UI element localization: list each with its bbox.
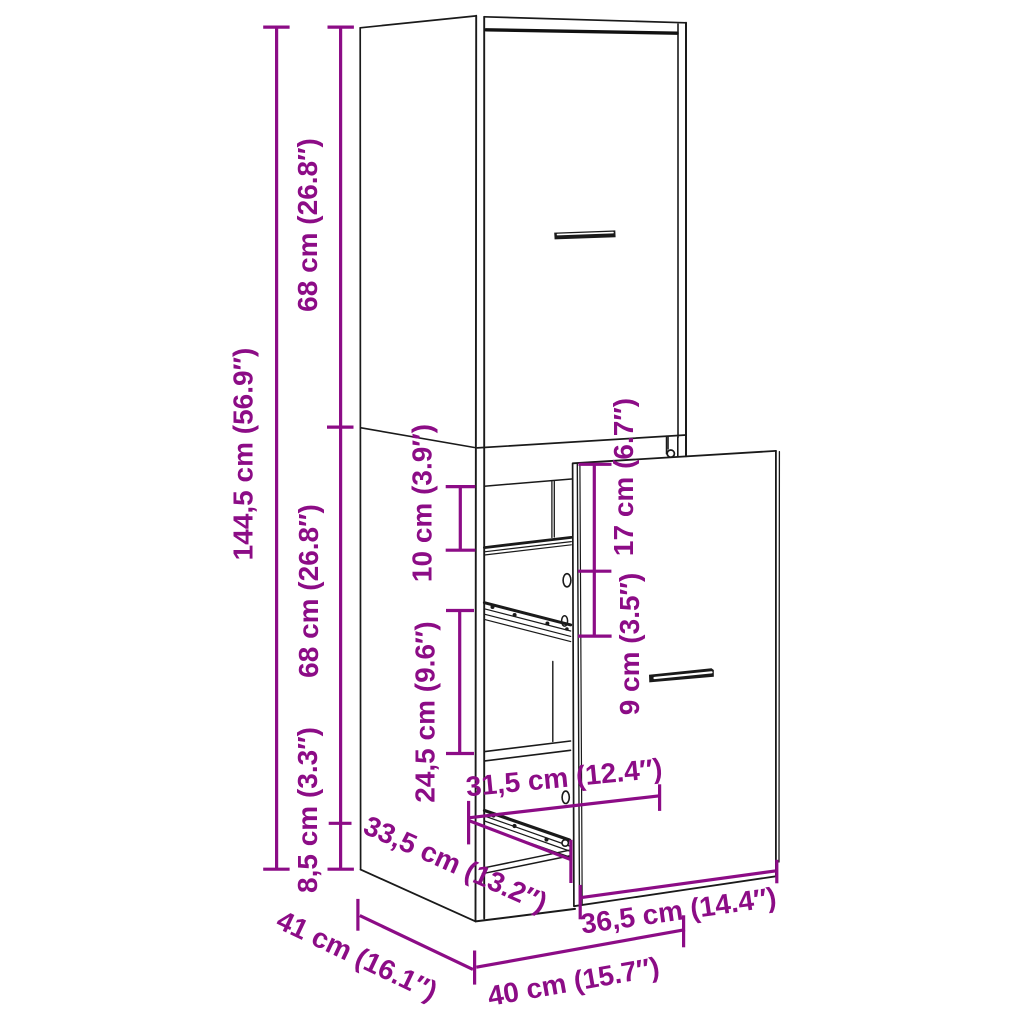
svg-text:9 cm (3.5″): 9 cm (3.5″) [614, 573, 645, 716]
svg-text:68 cm (26.8″): 68 cm (26.8″) [292, 138, 323, 312]
svg-text:68 cm (26.8″): 68 cm (26.8″) [293, 504, 324, 678]
svg-text:17 cm (6.7″): 17 cm (6.7″) [608, 398, 639, 556]
svg-text:10 cm (3.9″): 10 cm (3.9″) [407, 424, 438, 582]
svg-text:144,5 cm (56.9″): 144,5 cm (56.9″) [228, 348, 259, 561]
svg-text:24,5 cm (9.6″): 24,5 cm (9.6″) [410, 621, 441, 803]
svg-text:8,5 cm (3.3″): 8,5 cm (3.3″) [292, 727, 323, 893]
